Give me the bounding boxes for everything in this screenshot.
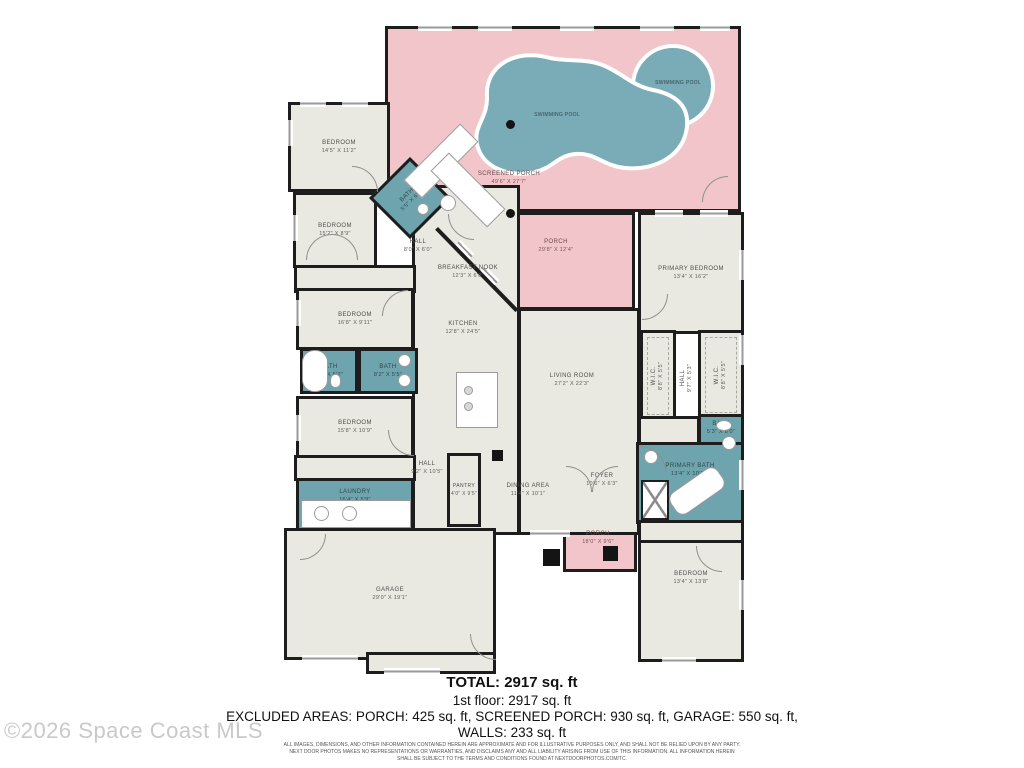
- room-label: LAUNDRY: [339, 489, 370, 496]
- porch-post: [506, 120, 515, 129]
- room-dims: 4'0" X 9'5": [451, 491, 477, 498]
- window: [286, 120, 293, 146]
- porch-post: [543, 549, 560, 566]
- disclaimer-line-3: SHALL BE SUBJECT TO THE TERMS AND CONDIT…: [0, 756, 1024, 763]
- kitchen-island: [456, 372, 498, 428]
- stove-icon: [440, 195, 456, 211]
- screen-panel: [418, 24, 452, 31]
- room-label: DINING AREA: [506, 483, 549, 490]
- living-dining-block: [518, 308, 640, 535]
- screen-panel: [478, 24, 512, 31]
- porch-post: [603, 546, 618, 561]
- room-label: BEDROOM: [338, 420, 372, 427]
- room-dims: 13'4" X 13'8": [674, 579, 709, 586]
- washer-icon: [314, 506, 329, 521]
- porch-label: PORCH 29'8" X 12'4": [518, 236, 594, 256]
- window: [739, 250, 746, 280]
- kitchen-label: KITCHEN 12'8" X 24'5": [424, 318, 502, 338]
- room-dims: 9'2" X 10'5": [411, 469, 443, 476]
- room-dims: 16'8" X 9'11": [338, 320, 373, 327]
- room-dims: 8'8" X 5'5": [721, 361, 728, 389]
- breakfast-nook-label: BREAKFAST NOOK 12'3" X 6'0": [428, 262, 508, 282]
- room-dims: 8'8" X 5'5": [658, 362, 665, 390]
- disclaimer-line-2: NEXT DOOR PHOTOS MAKES NO REPRESENTATION…: [0, 749, 1024, 756]
- toilet-icon: [716, 420, 732, 431]
- sink-icon: [464, 386, 473, 395]
- room-label: SCREENED PORCH: [478, 171, 540, 178]
- dining-area-label: DINING AREA 11'4" X 10'1": [488, 480, 568, 500]
- living-room-label: LIVING ROOM 27'2" X 22'3": [532, 370, 612, 390]
- sink-icon: [398, 374, 411, 387]
- front-porch-label: PORCH 18'0" X 9'6": [566, 528, 630, 548]
- total-area-text: TOTAL: 2917 sq. ft: [0, 674, 1024, 691]
- room-wic-right: W.I.C. 8'8" X 5'5": [698, 330, 744, 420]
- screen-panel: [640, 24, 674, 31]
- window: [739, 460, 746, 490]
- window: [294, 415, 301, 441]
- room-label: W.I.C.: [651, 367, 658, 386]
- room-label: PORCH: [586, 531, 610, 538]
- window: [655, 210, 683, 217]
- toilet-icon: [417, 203, 429, 215]
- mls-watermark: ©2026 Space Coast MLS: [4, 718, 263, 744]
- window: [700, 210, 728, 217]
- pool-label: SWIMMING POOL: [522, 112, 592, 118]
- dryer-icon: [342, 506, 357, 521]
- room-dims: 12'3" X 6'0": [452, 273, 484, 280]
- room-dims: 8'0" X 6'0": [404, 247, 432, 254]
- room-label: BEDROOM: [318, 223, 352, 230]
- room-label-group: W.I.C. 8'8" X 5'5": [714, 361, 728, 389]
- room-label: HALL: [410, 239, 427, 246]
- room-bedroom-5: BEDROOM 13'4" X 13'8": [638, 540, 744, 662]
- floor-plan-page: SWIMMING POOL SWIMMING POOL BEDROOM 14'5…: [0, 0, 1024, 768]
- window: [300, 100, 326, 107]
- room-label: GARAGE: [376, 587, 404, 594]
- window: [294, 300, 301, 326]
- window: [739, 335, 746, 365]
- hall-wic-label: HALL 9'7" X 5'3": [672, 350, 702, 406]
- room-label: PRIMARY BEDROOM: [658, 266, 724, 273]
- room-dims: 29'8" X 12'4": [539, 247, 574, 254]
- window: [291, 215, 298, 241]
- room-dims: 14'5" X 11'2": [322, 148, 357, 155]
- room-dims: 15'8" X 10'9": [338, 428, 373, 435]
- room-label: BREAKFAST NOOK: [438, 265, 498, 272]
- room-label-group: W.I.C. 8'8" X 5'5": [651, 362, 665, 390]
- sink-icon: [644, 450, 658, 464]
- room-dims: 12'8" X 24'5": [446, 329, 481, 336]
- sink-icon: [464, 402, 473, 411]
- wall-post: [492, 450, 503, 461]
- spa-label: SWIMMING POOL: [648, 80, 708, 86]
- room-dims: 29'0" X 19'1": [373, 595, 408, 602]
- screen-panel: [700, 24, 730, 31]
- room-label: LIVING ROOM: [550, 373, 594, 380]
- room-label: PANTRY: [453, 483, 475, 490]
- room-dims: 9'7" X 5'3": [687, 364, 694, 392]
- sink-icon: [398, 354, 411, 367]
- room-dims: 13'4" X 16'2": [674, 274, 709, 281]
- room-pantry: PANTRY 4'0" X 9'5": [447, 453, 481, 527]
- room-label: HALL: [680, 370, 687, 387]
- window: [662, 657, 696, 664]
- first-floor-text: 1st floor: 2917 sq. ft: [0, 693, 1024, 708]
- room-wic-left: W.I.C. 8'8" X 5'5": [640, 330, 676, 422]
- screen-panel: [560, 24, 594, 31]
- room-label: BEDROOM: [338, 312, 372, 319]
- room-label: HALL: [419, 461, 436, 468]
- room-dims: 18'0" X 9'6": [582, 539, 614, 546]
- room-dims: 11'4" X 10'1": [511, 491, 546, 498]
- room-dims: 49'6" X 27'7": [492, 179, 527, 186]
- bathtub-icon: [302, 350, 328, 392]
- room-label: BEDROOM: [674, 571, 708, 578]
- window: [530, 530, 570, 537]
- room-label: BEDROOM: [322, 140, 356, 147]
- room-label-group: HALL 9'7" X 5'3": [680, 364, 694, 392]
- shower-icon: [641, 480, 669, 520]
- room-label: PORCH: [544, 239, 568, 246]
- room-dims: 27'2" X 22'3": [555, 381, 590, 388]
- window: [342, 100, 368, 107]
- window: [739, 580, 746, 610]
- room-label: BATH: [379, 364, 396, 371]
- garage-door: [302, 655, 358, 662]
- room-label: W.I.C.: [714, 366, 721, 385]
- porch-post: [506, 209, 515, 218]
- room-label: KITCHEN: [448, 321, 477, 328]
- hall-top-label: HALL 8'0" X 6'0": [396, 236, 440, 256]
- sink-icon: [722, 436, 736, 450]
- toilet-icon: [330, 374, 341, 388]
